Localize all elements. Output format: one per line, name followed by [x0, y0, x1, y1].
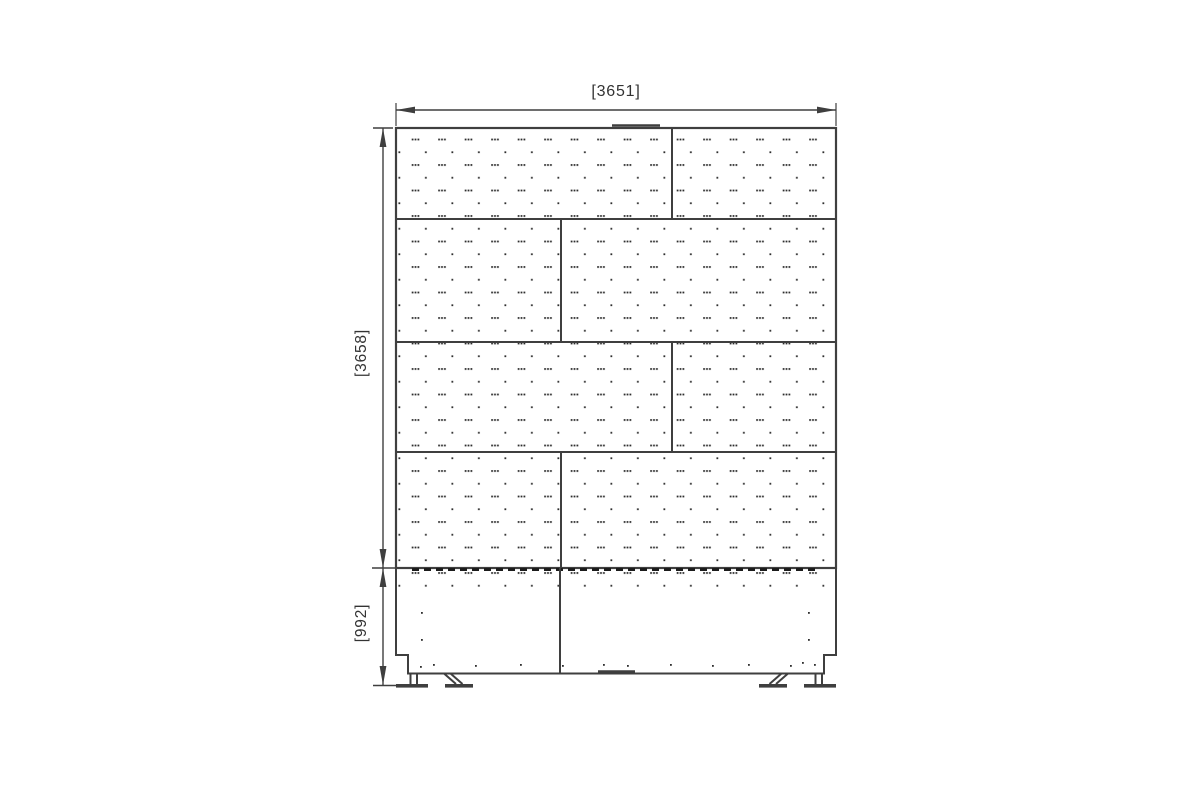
base-height-dimension-label: [992] [353, 578, 371, 668]
width-dimension-label: [3651] [396, 83, 836, 101]
drawing-geometry [372, 103, 836, 688]
height-dimension-label: [3658] [353, 308, 371, 398]
drawing-page: [3651] [3658] [992] [0, 0, 1200, 800]
technical-drawing [0, 0, 1200, 800]
